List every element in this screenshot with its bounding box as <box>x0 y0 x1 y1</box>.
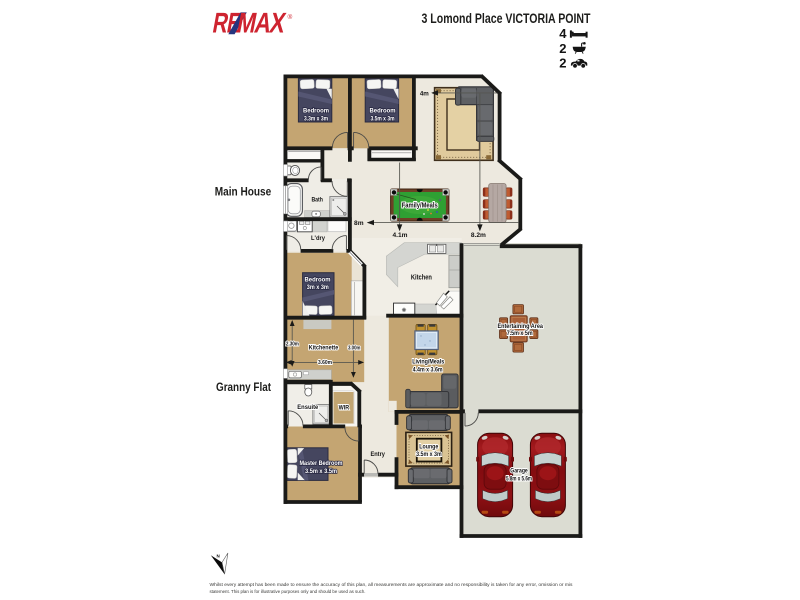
svg-text:4.4m x 3.6m: 4.4m x 3.6m <box>413 366 443 373</box>
svg-text:Bath: Bath <box>311 196 323 203</box>
svg-text:8m: 8m <box>354 220 364 227</box>
svg-text:3m x 3m: 3m x 3m <box>307 284 329 291</box>
svg-text:3 Lomond Place VICTORIA POINT: 3 Lomond Place VICTORIA POINT <box>422 11 592 26</box>
svg-text:✺: ✺ <box>401 307 406 314</box>
svg-text:Lounge: Lounge <box>419 443 438 450</box>
svg-text:4m: 4m <box>420 90 429 97</box>
svg-text:3.00m: 3.00m <box>348 346 361 352</box>
svg-text:3.5m x 3m: 3.5m x 3m <box>371 115 395 122</box>
svg-text:2.30m: 2.30m <box>286 341 299 347</box>
svg-text:statement. This plan is for il: statement. This plan is for illustrative… <box>210 589 366 595</box>
svg-text:®: ® <box>288 13 293 21</box>
svg-text:Granny Flat: Granny Flat <box>216 382 271 394</box>
svg-text:7.5m x 5m: 7.5m x 5m <box>507 330 533 337</box>
svg-text:Kitchen: Kitchen <box>411 275 432 282</box>
svg-text:L'dry: L'dry <box>311 235 325 242</box>
svg-text:4: 4 <box>559 26 567 41</box>
svg-text:Main House: Main House <box>215 187 272 199</box>
svg-text:Entry: Entry <box>370 451 385 458</box>
svg-text:Garage: Garage <box>510 468 528 475</box>
svg-text:Family/Meals: Family/Meals <box>402 202 438 209</box>
svg-text:Bedroom: Bedroom <box>303 108 329 115</box>
svg-text:Master Bedroom: Master Bedroom <box>300 460 343 467</box>
svg-text:3.3m x 3m: 3.3m x 3m <box>304 115 328 122</box>
svg-text:Kitchenette: Kitchenette <box>309 345 339 352</box>
svg-text:3.60m: 3.60m <box>318 360 332 366</box>
svg-text:5.8m x 5.6m: 5.8m x 5.6m <box>506 476 532 483</box>
svg-text:3.5m x 3.5m: 3.5m x 3.5m <box>305 468 337 475</box>
svg-text:MAX: MAX <box>235 6 290 39</box>
svg-text:Entertaining Area: Entertaining Area <box>497 323 543 330</box>
svg-text:N: N <box>217 554 220 559</box>
svg-text:Bedroom: Bedroom <box>305 276 331 283</box>
svg-text:Ensuite: Ensuite <box>297 404 318 411</box>
svg-text:2: 2 <box>559 56 566 71</box>
svg-text:Whilst every attempt has been: Whilst every attempt has been made to en… <box>210 582 574 588</box>
svg-text:Bedroom: Bedroom <box>370 108 396 115</box>
svg-text:4.1m: 4.1m <box>392 232 407 239</box>
svg-text:Living/Meals: Living/Meals <box>412 358 444 365</box>
svg-text:3.5m x 3m: 3.5m x 3m <box>416 451 442 458</box>
svg-text:WIR: WIR <box>339 404 350 411</box>
svg-text:8.2m: 8.2m <box>471 232 486 239</box>
svg-text:2: 2 <box>559 41 566 56</box>
